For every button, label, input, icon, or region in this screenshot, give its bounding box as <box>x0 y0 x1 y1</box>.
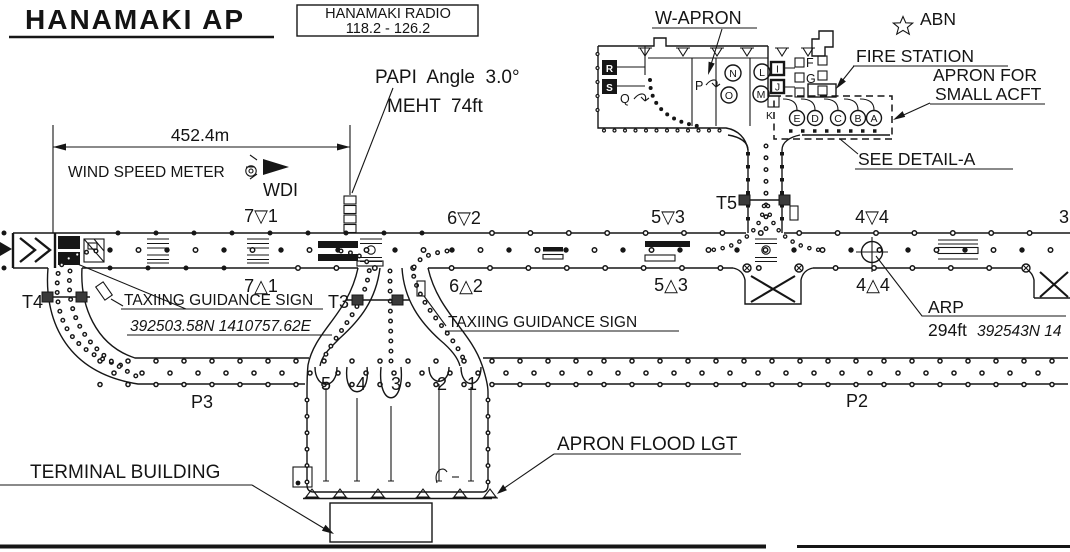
dimension-label: 452.4m <box>171 125 229 145</box>
w-apron-complex: R S Q P N O L M I J K F G E <box>598 31 893 150</box>
position-label: O <box>725 90 733 102</box>
flood-light-symbols <box>304 489 498 498</box>
position-label: F <box>806 56 814 70</box>
position-label: C <box>834 113 842 125</box>
threshold-block <box>58 236 80 249</box>
meht-label: MEHT 74ft <box>387 96 483 117</box>
stand-number: 3 <box>391 374 401 394</box>
mark-top: 7▽1 <box>244 206 278 226</box>
stand-number: 1 <box>467 374 477 394</box>
position-label: A <box>870 113 877 125</box>
terminal-building-label: TERMINAL BUILDING <box>30 462 220 483</box>
position-label: N <box>729 68 737 80</box>
position-label: D <box>811 113 819 125</box>
position-label: E <box>793 113 800 125</box>
aiming-point-marking <box>318 241 358 248</box>
position-label: R <box>606 64 614 75</box>
flood-light-symbols <box>638 48 815 56</box>
position-label: P <box>695 79 703 93</box>
aiming-point-marking <box>318 254 358 261</box>
taxiway-label-t3: T3 <box>328 292 349 312</box>
runway <box>0 231 1070 271</box>
page-title: HANAMAKI AP <box>25 4 245 35</box>
apron-flood-label: APRON FLOOD LGT <box>557 434 738 455</box>
mark-top: 4▽4 <box>855 207 889 227</box>
mark-bottom: 4△4 <box>856 275 890 295</box>
taxiway-label-t4: T4 <box>22 292 43 312</box>
closed-taxiway-stub <box>1022 264 1070 298</box>
wdi-symbol <box>246 155 289 179</box>
wdi-label: WDI <box>263 180 298 200</box>
position-label: K <box>766 110 773 122</box>
mark-top: 6▽2 <box>447 208 481 228</box>
fire-station-label: FIRE STATION <box>856 46 974 66</box>
w-apron-label: W-APRON <box>655 8 742 28</box>
wind-speed-meter-label: WIND SPEED METER <box>68 164 225 181</box>
sign-coordinates: 392503.58N 1410757.62E <box>130 318 312 335</box>
position-label: I <box>776 64 779 76</box>
mark-bottom: 6△2 <box>449 276 483 296</box>
stand-number: 2 <box>437 374 447 394</box>
abn-label: ABN <box>920 9 956 29</box>
chart-canvas: R S Q P N O L M I J K F G E <box>0 0 1070 552</box>
papi-angle-label: PAPI Angle 3.0° <box>375 67 520 88</box>
stand-numbers: 5 4 3 2 1 <box>321 374 477 394</box>
terminal-building-outline <box>330 503 432 542</box>
airport-chart-hanamaki: R S Q P N O L M I J K F G E <box>0 0 1070 552</box>
stand-number: 5 <box>321 374 331 394</box>
small-acft-stands: E D C B A <box>783 99 884 131</box>
small-acft-label: SMALL ACFT <box>935 84 1042 104</box>
arp-coordinates: 392543N 14 <box>977 323 1062 340</box>
arp-leader <box>876 256 1066 316</box>
position-label: Q <box>620 92 630 106</box>
stand-lines <box>326 384 471 481</box>
see-detail-label: SEE DETAIL-A <box>858 149 976 169</box>
closed-taxiway-stub <box>733 264 813 304</box>
leader-lines <box>63 29 930 534</box>
arp-elevation: 294ft <box>928 320 967 340</box>
mark-bottom: 5△3 <box>654 275 688 295</box>
taxiing-sign-label-2: TAXIING GUIDANCE SIGN <box>448 314 637 331</box>
position-label: J <box>775 82 780 94</box>
position-label: M <box>757 89 766 101</box>
position-label: B <box>854 113 861 125</box>
closed-x-marking <box>751 276 795 302</box>
closed-x-marking <box>1040 272 1068 297</box>
apron-for-label: APRON FOR <box>933 65 1037 85</box>
fire-station-area <box>812 31 833 56</box>
runway-marker-group <box>147 239 978 266</box>
beacon-star-icon <box>893 17 912 35</box>
stand-number: 4 <box>356 374 366 394</box>
guidance-sign-symbol <box>96 282 113 300</box>
threshold-chevrons-icon <box>20 238 50 262</box>
arp-label: ARP <box>928 297 964 317</box>
radio-name: HANAMAKI RADIO <box>325 6 451 22</box>
position-label: S <box>606 83 613 94</box>
apron-label-p2: P2 <box>846 391 868 411</box>
papi-symbol <box>344 88 393 233</box>
radio-frequency: 118.2 - 126.2 <box>346 21 430 37</box>
mark-top: 5▽3 <box>651 207 685 227</box>
position-label: L <box>759 67 765 79</box>
mark-top: 3 <box>1059 207 1069 227</box>
taxiing-sign-label-1: TAXIING GUIDANCE SIGN <box>124 292 313 309</box>
apron-label-p3: P3 <box>191 392 213 412</box>
taxiway-label-t5: T5 <box>716 193 737 213</box>
